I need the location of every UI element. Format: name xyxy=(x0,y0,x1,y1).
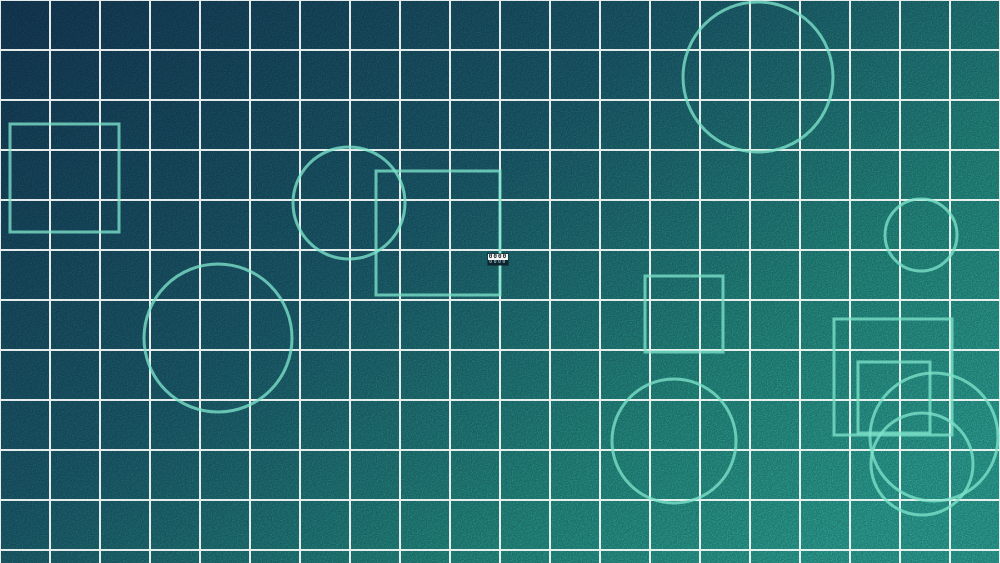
tiny-counter-shadow: 0000 xyxy=(488,260,508,265)
shapes-grid-scene[interactable] xyxy=(0,0,1000,563)
shape-canvas[interactable]: 0000 0000 xyxy=(0,0,1000,563)
tiny-counter-badge: 0000 0000 xyxy=(488,254,508,265)
